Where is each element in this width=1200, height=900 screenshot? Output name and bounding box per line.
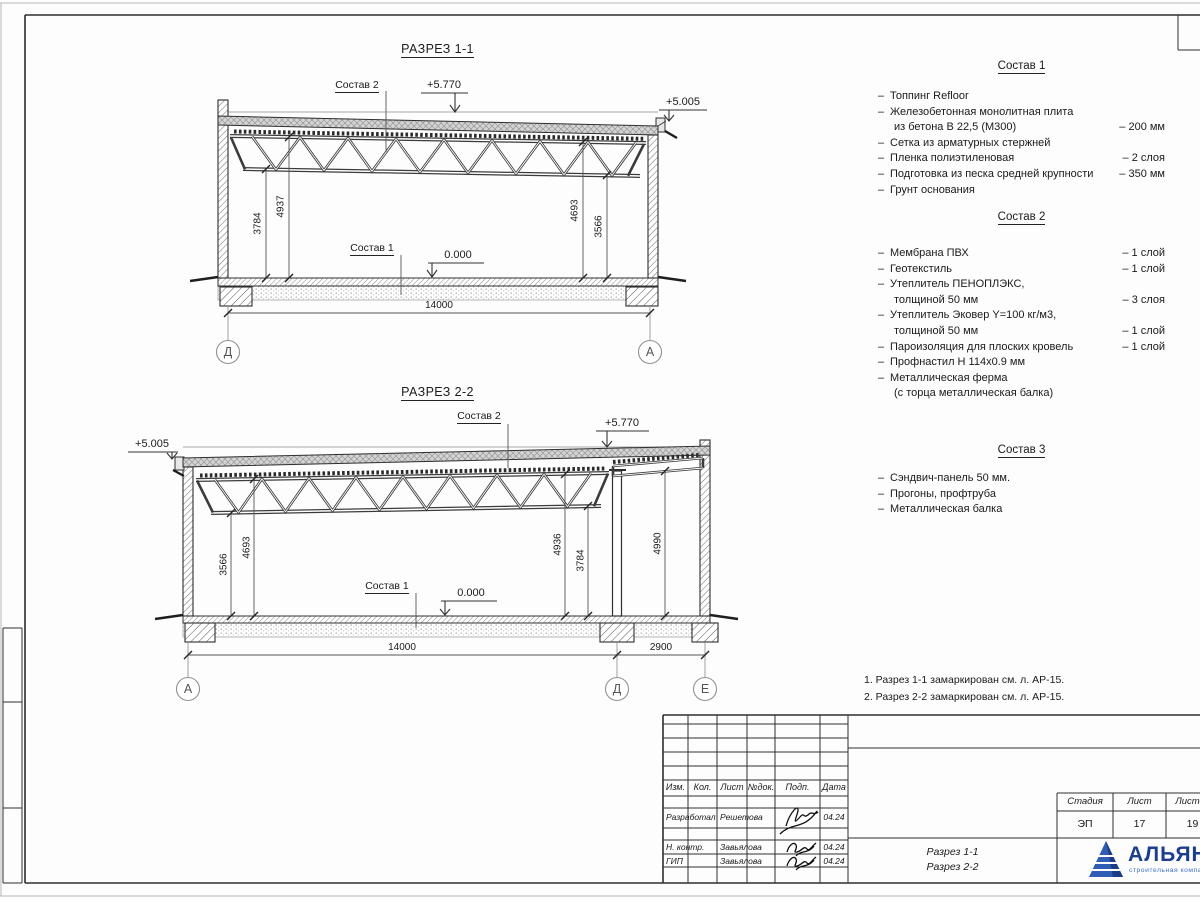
- note-2: 2. Разрез 2-2 замаркирован см. л. АР-15.: [864, 689, 1064, 706]
- tb-sheets-value: 19: [1166, 818, 1200, 830]
- s1-dim-span: 14000: [404, 300, 474, 311]
- tb-doc-title-line2: Разрез 2-2: [848, 860, 1057, 875]
- item-dash: –: [878, 105, 890, 121]
- item-text: Утеплитель ПЕНОПЛЭКС,: [890, 278, 1024, 290]
- item-dash: –: [878, 371, 890, 387]
- item-text: Пленка полиэтиленовая: [890, 152, 1014, 164]
- tb-stage-header: Стадия: [1057, 796, 1113, 807]
- item-text: Прогоны, профтруба: [890, 488, 996, 500]
- item-dash: –: [878, 262, 890, 278]
- item-text: Утеплитель Эковер Y=100 кг/м3,: [890, 309, 1056, 321]
- tb-doc-title-line1: Разрез 1-1: [848, 845, 1057, 860]
- tb-col-izm: Изм.: [663, 782, 688, 792]
- composition-item: –Профнастил Н 114х0.9 мм: [878, 355, 1165, 371]
- tb-doc-title: Разрез 1-1 Разрез 2-2: [848, 845, 1057, 875]
- composition-item: –Прогоны, профтруба: [878, 487, 1165, 503]
- tb-role-gip: ГИП: [666, 856, 683, 866]
- item-text: Пароизоляция для плоских кровель: [890, 341, 1073, 353]
- item-dash: –: [878, 502, 890, 518]
- composition-item: –Пленка полиэтиленовая – 2 слоя: [878, 151, 1165, 167]
- s1-elevation-low: +5.005: [658, 96, 708, 108]
- item-text: Подготовка из песка средней крупности: [890, 168, 1093, 180]
- composition-item: –Грунт основания: [878, 183, 1165, 199]
- item-text: Геотекстиль: [890, 263, 952, 275]
- item-value: – 2 слоя: [1123, 151, 1165, 167]
- s2-composition2-label: Состав 2: [450, 410, 508, 424]
- item-text: Сэндвич-панель 50 мм.: [890, 472, 1010, 484]
- tb-sheet-header: Лист: [1113, 796, 1166, 807]
- tb-date-gip: 04.24: [820, 856, 848, 866]
- item-value: – 1 слой: [1122, 340, 1165, 356]
- s2-dim-span-right: 2900: [626, 642, 696, 653]
- tb-name-ncontrol: Завьялова: [720, 842, 762, 852]
- item-text: Металлическая балка: [890, 503, 1002, 515]
- item-dash: –: [878, 167, 890, 183]
- composition-item: –Металлическая балка: [878, 502, 1165, 518]
- s2-axis-mid: Д: [606, 682, 628, 697]
- composition-item: –Утеплитель ПЕНОПЛЭКС, толщиной 50 мм – …: [878, 277, 1165, 308]
- section-2-title: РАЗРЕЗ 2-2: [385, 385, 490, 401]
- item-value: – 200 мм: [1119, 120, 1165, 136]
- tb-role-ncontrol: Н. контр.: [666, 842, 704, 852]
- item-dash: –: [878, 277, 890, 293]
- s2-elevation-low: +5.005: [127, 438, 177, 450]
- s1-dim-right-inner: 4693: [569, 181, 582, 241]
- item-text: Сетка из арматурных стержней: [890, 137, 1050, 149]
- item-text: Мембрана ПВХ: [890, 247, 969, 259]
- composition-3-title: Состав 3: [878, 444, 1165, 458]
- company-logo-icon: [1089, 841, 1123, 877]
- section-1-title: РАЗРЕЗ 1-1: [385, 42, 490, 58]
- composition-item: –Сэндвич-панель 50 мм.: [878, 471, 1165, 487]
- truss-2-2: [196, 473, 609, 513]
- s1-axis-left: Д: [217, 345, 239, 360]
- item-value: – 1 слой: [1122, 246, 1165, 262]
- composition-item: –Железобетонная монолитная плита из бето…: [878, 105, 1165, 136]
- composition-3-items: –Сэндвич-панель 50 мм. –Прогоны, профтру…: [878, 471, 1165, 518]
- tb-date-developer: 04.24: [820, 812, 848, 822]
- s2-elevation-high: +5.770: [596, 417, 648, 429]
- item-text-cont: из бетона В 22,5 (М300): [878, 120, 1119, 136]
- composition-item: –Топпинг Refloor: [878, 89, 1165, 105]
- tb-stage-value: ЭП: [1057, 818, 1113, 830]
- item-dash: –: [878, 151, 890, 167]
- company-subtitle: строительная компания: [1129, 867, 1200, 874]
- composition-1-title: Состав 1: [878, 60, 1165, 74]
- tb-col-data: Дата: [820, 782, 848, 792]
- tb-role-developer: Разработал: [666, 812, 716, 822]
- item-dash: –: [878, 246, 890, 262]
- composition-1-items: –Топпинг Refloor –Железобетонная монолит…: [878, 89, 1165, 198]
- s1-dim-right-outer: 3566: [593, 197, 606, 257]
- composition-item: –Металлическая ферма (с торца металличес…: [878, 371, 1165, 402]
- s2-axis-left: А: [177, 682, 199, 697]
- s1-composition1-label: Состав 1: [343, 242, 401, 256]
- s2-composition1-label: Состав 1: [358, 580, 416, 594]
- item-text: Топпинг Refloor: [890, 90, 969, 102]
- composition-item: –Сетка из арматурных стержней: [878, 136, 1165, 152]
- s2-elevation-zero: 0.000: [446, 587, 496, 599]
- s2-axis-right: Е: [694, 682, 716, 697]
- composition-1-block: Состав 1 –Топпинг Refloor –Железобетонна…: [878, 60, 1165, 198]
- item-value: – 3 слоя: [1123, 293, 1165, 309]
- composition-item: –Мембрана ПВХ – 1 слой: [878, 246, 1165, 262]
- item-text: Железобетонная монолитная плита: [890, 106, 1073, 118]
- tb-col-kol: Кол.: [688, 782, 717, 792]
- section-1-1-drawing: [190, 91, 707, 364]
- s2-dim-span: 14000: [367, 642, 437, 653]
- composition-2-block: Состав 2 –Мембрана ПВХ – 1 слой –Геотекс…: [878, 211, 1165, 402]
- tb-sheets-header: Листов: [1166, 796, 1200, 807]
- item-dash: –: [878, 340, 890, 356]
- company-name: АЛЬЯНС: [1128, 843, 1200, 867]
- note-1: 1. Разрез 1-1 замаркирован см. л. АР-15.: [864, 672, 1064, 689]
- composition-2-items: –Мембрана ПВХ – 1 слой –Геотекстиль – 1 …: [878, 246, 1165, 402]
- tb-date-ncontrol: 04.24: [820, 842, 848, 852]
- notes-block: 1. Разрез 1-1 замаркирован см. л. АР-15.…: [864, 672, 1064, 705]
- composition-item: –Геотекстиль – 1 слой: [878, 262, 1165, 278]
- tb-name-developer: Решетова: [720, 812, 763, 822]
- item-text: Профнастил Н 114х0.9 мм: [890, 356, 1025, 368]
- signature-gip: [787, 857, 816, 870]
- tb-col-podp: Подп.: [775, 782, 820, 792]
- item-text: Металлическая ферма: [890, 372, 1008, 384]
- signature-scribbles: [780, 808, 818, 870]
- s1-elevation-high: +5.770: [420, 79, 468, 91]
- item-text-cont: толщиной 50 мм: [878, 293, 1123, 309]
- s1-axis-right: А: [639, 345, 661, 360]
- item-dash: –: [878, 308, 890, 324]
- item-dash: –: [878, 89, 890, 105]
- s1-dim-left-outer: 3784: [252, 194, 265, 254]
- composition-item: –Подготовка из песка средней крупности –…: [878, 167, 1165, 183]
- item-text: Грунт основания: [890, 184, 975, 196]
- tb-col-ndok: №док.: [747, 782, 775, 792]
- composition-3-block: Состав 3 –Сэндвич-панель 50 мм. –Прогоны…: [878, 444, 1165, 518]
- item-dash: –: [878, 183, 890, 199]
- item-dash: –: [878, 136, 890, 152]
- composition-item: –Пароизоляция для плоских кровель – 1 сл…: [878, 340, 1165, 356]
- item-dash: –: [878, 355, 890, 371]
- item-text-cont: (с торца металлическая балка): [878, 386, 1165, 402]
- tb-name-gip: Завьялова: [720, 856, 762, 866]
- item-value: – 1 слой: [1122, 324, 1165, 340]
- s2-dim-left-inner: 4693: [241, 518, 254, 578]
- s2-dim-left-outer: 3566: [218, 535, 231, 595]
- item-dash: –: [878, 471, 890, 487]
- s2-dim-mid-outer: 3784: [575, 531, 588, 591]
- tb-sheet-value: 17: [1113, 818, 1166, 830]
- item-dash: –: [878, 487, 890, 503]
- s1-dim-left-inner: 4937: [275, 177, 288, 237]
- composition-item: –Утеплитель Эковер Y=100 кг/м3, толщиной…: [878, 308, 1165, 339]
- composition-2-title: Состав 2: [878, 211, 1165, 225]
- drawing-sheet: РАЗРЕЗ 1-1 Состав 2 +5.770 +5.005 Состав…: [0, 0, 1200, 900]
- s1-composition2-label: Состав 2: [328, 79, 386, 93]
- signature-developer: [780, 808, 818, 834]
- s2-dim-mid-inner: 4936: [552, 515, 565, 575]
- tb-col-list: Лист: [717, 782, 747, 792]
- s2-dim-right-bay: 4990: [652, 514, 665, 574]
- item-value: – 350 мм: [1119, 167, 1165, 183]
- s1-elevation-zero: 0.000: [433, 249, 483, 261]
- item-text-cont: толщиной 50 мм: [878, 324, 1122, 340]
- item-value: – 1 слой: [1122, 262, 1165, 278]
